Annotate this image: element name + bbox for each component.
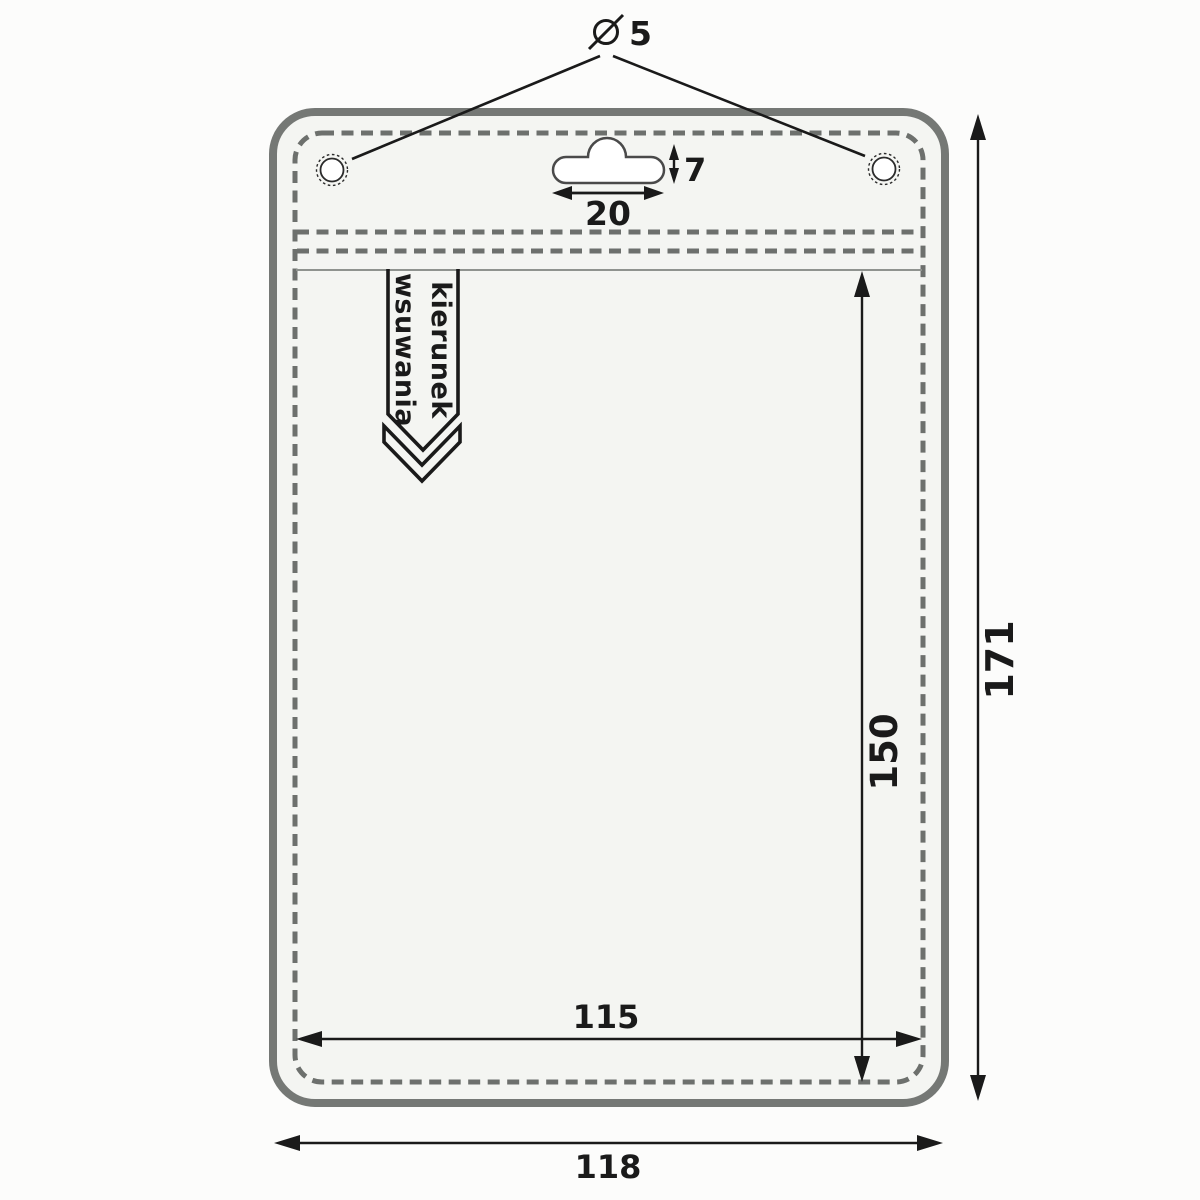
- diameter-icon: [589, 15, 623, 49]
- overall-width-label: 118: [575, 1148, 642, 1186]
- slot-width-label: 20: [585, 194, 631, 233]
- arrowhead-up-icon: [970, 114, 986, 140]
- slot-height-label: 7: [684, 151, 706, 189]
- arrowhead-right-icon: [917, 1135, 943, 1151]
- arrowhead-left-icon: [274, 1135, 300, 1151]
- insertion-arrow-text-line1: kierunek: [425, 281, 456, 419]
- eyelet-left-hole: [321, 159, 344, 182]
- diameter-value-label: 5: [629, 14, 652, 53]
- holder-outer-outline: [273, 112, 945, 1103]
- overall-height-dimension: 171: [970, 114, 1022, 1101]
- badge-holder-dimension-drawing: 5 7 20 kierunek wsuwania 150 171: [0, 0, 1200, 1200]
- overall-height-label: 171: [978, 620, 1022, 699]
- overall-width-dimension: 118: [274, 1135, 943, 1186]
- pocket-height-label: 150: [863, 713, 906, 790]
- eyelet-right-hole: [873, 158, 896, 181]
- arrowhead-down-icon: [970, 1075, 986, 1101]
- insertion-arrow-text-line2: wsuwania: [389, 273, 420, 427]
- pocket-width-label: 115: [573, 998, 640, 1036]
- drawing-canvas: 5 7 20 kierunek wsuwania 150 171: [0, 0, 1200, 1200]
